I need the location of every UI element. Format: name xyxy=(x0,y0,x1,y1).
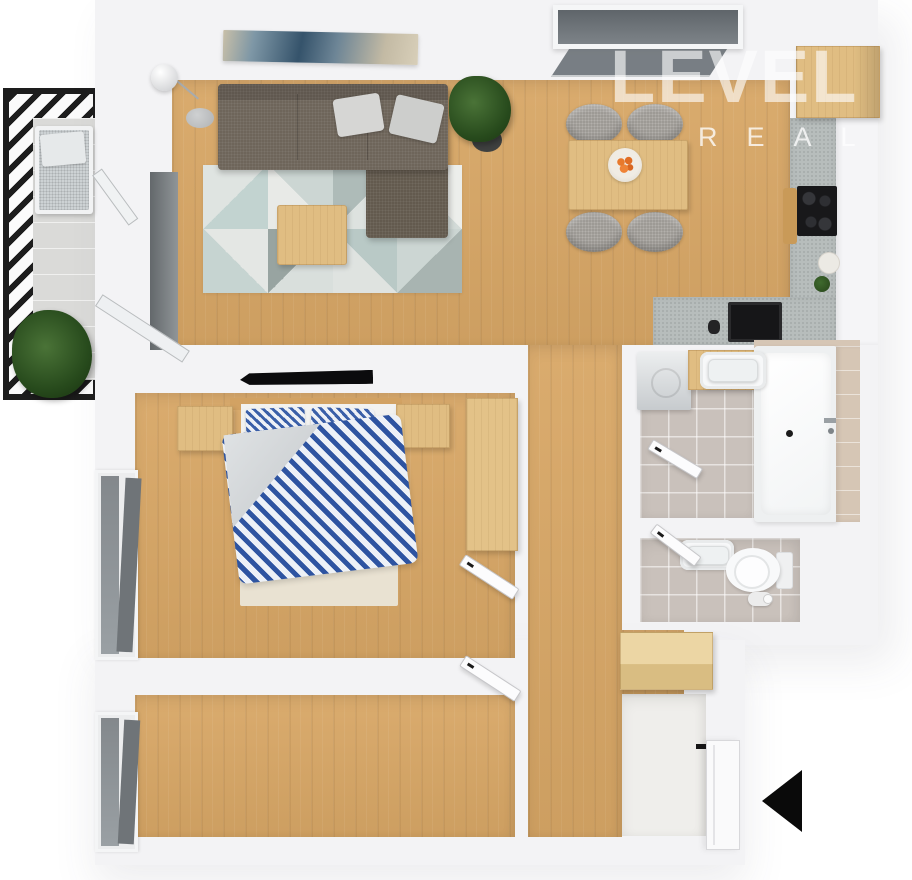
kitchen-top-window-open-pane xyxy=(551,49,727,77)
door-handle xyxy=(654,446,662,452)
duvet-fold xyxy=(222,423,333,529)
bathtub-faucet xyxy=(824,418,836,423)
entrance-door-handle xyxy=(696,744,706,749)
counter-plate xyxy=(818,252,840,274)
window-open-pane xyxy=(116,478,141,653)
kitchen-sink xyxy=(728,302,782,342)
window-glass xyxy=(101,718,119,846)
toilet xyxy=(726,548,780,592)
sink-bowl xyxy=(708,359,758,382)
living-plant xyxy=(449,76,511,142)
cutting-board xyxy=(783,188,797,244)
window-glass xyxy=(101,476,119,654)
kitchen-tall-cabinet xyxy=(796,46,880,118)
nightstand-right xyxy=(396,404,450,448)
dining-chair xyxy=(627,212,683,252)
tile-accent-wall xyxy=(836,346,860,522)
bathtub xyxy=(754,346,838,522)
floor-lamp-base xyxy=(186,108,214,128)
entry-floor xyxy=(622,694,706,836)
kitchen-faucet xyxy=(708,320,720,334)
dining-chair xyxy=(566,212,622,252)
bathroom-sink xyxy=(700,352,766,389)
washing-machine xyxy=(637,352,691,410)
kitchen-cabinet-band xyxy=(836,118,878,345)
balcony-lounge-daybed xyxy=(35,126,93,214)
washer-drum xyxy=(651,368,681,398)
second-room-floor xyxy=(135,695,515,837)
oranges xyxy=(615,155,635,175)
rug-triangle xyxy=(397,229,462,293)
second-room-window xyxy=(95,712,138,852)
counter-plant xyxy=(814,276,830,292)
bathtub-inner xyxy=(761,353,831,515)
lounge-pillow xyxy=(40,131,87,167)
sofa-pillow-left xyxy=(332,93,384,138)
dining-chair xyxy=(566,104,622,144)
hallway-bench xyxy=(620,632,713,690)
wall-art xyxy=(223,30,419,65)
sofa-seam xyxy=(297,94,298,160)
entrance-door-edge xyxy=(713,745,715,845)
bathtub-drain xyxy=(786,430,793,437)
floor-lamp xyxy=(151,64,178,91)
toilet-seat xyxy=(734,555,770,589)
wardrobe xyxy=(466,398,518,551)
bathtub-faucet-knob xyxy=(828,428,834,434)
cooktop xyxy=(797,186,837,236)
rug-triangle xyxy=(203,229,268,293)
bed-duvet xyxy=(222,414,419,585)
bedroom-window xyxy=(95,470,138,660)
entrance-arrow-icon xyxy=(762,770,802,832)
door-handle xyxy=(467,663,475,669)
entrance-door xyxy=(706,740,740,850)
toilet-paper xyxy=(748,592,772,606)
balcony-plant xyxy=(12,310,92,398)
door-handle xyxy=(657,531,664,538)
kitchen-top-window xyxy=(553,5,743,49)
dining-chair xyxy=(627,104,683,144)
rug-triangle xyxy=(203,165,268,229)
door-handle xyxy=(467,562,475,568)
balcony-door-panel xyxy=(150,172,178,350)
hallway-floor xyxy=(528,345,622,837)
coffee-table xyxy=(277,205,347,265)
fruit-bowl xyxy=(608,148,642,182)
window-open-pane xyxy=(118,720,140,845)
toilet-paper-end xyxy=(763,594,773,604)
floor-plan-canvas: LEVEL REAL xyxy=(0,0,912,880)
